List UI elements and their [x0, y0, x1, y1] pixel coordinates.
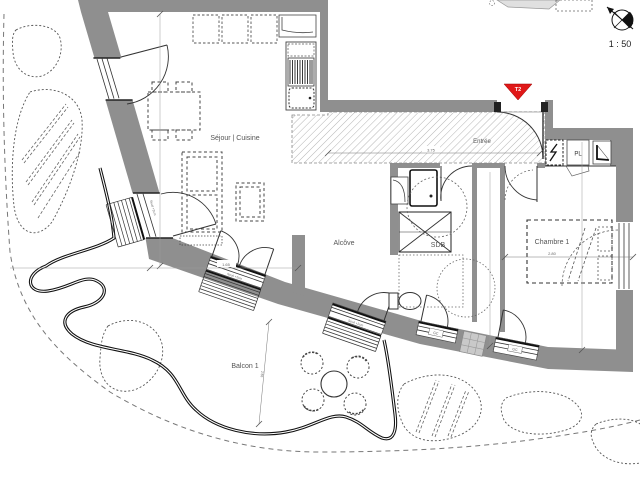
- door-jamb-right: [541, 102, 548, 112]
- turning-circle-lower: [437, 259, 495, 317]
- nightstand: [598, 227, 612, 251]
- planting-hatch-bottom: [416, 380, 469, 437]
- wall-right-lower: [616, 290, 633, 352]
- entree-floor-hatch: [292, 112, 545, 163]
- faucet-icon: [309, 97, 312, 100]
- scale-label: 1 : 50: [609, 39, 632, 49]
- vanity-unit: [391, 177, 408, 204]
- entree-label: Entrée: [473, 139, 491, 145]
- bed-outline: [527, 220, 612, 283]
- balcon-label: Balcon 1: [231, 363, 258, 370]
- chambre-furniture: [505, 166, 634, 290]
- dim-alcove: 1.65: [222, 262, 231, 267]
- placard-label: PL: [574, 152, 582, 158]
- wall-entree-south-3: [537, 163, 545, 168]
- upper-cabinet-1: [193, 15, 219, 43]
- dim-entree: 3.75: [427, 148, 436, 153]
- wall-stub-sejour-alcove: [292, 235, 305, 296]
- wall-entree-south-2: [472, 163, 505, 168]
- partition-chambre-west: [500, 168, 505, 332]
- dining-chair: [176, 130, 192, 140]
- chambre-door-arc: [505, 166, 537, 200]
- chambre-label: Chambre 1: [535, 239, 570, 246]
- wall-ne-band: [553, 128, 633, 140]
- wall-top: [78, 0, 322, 12]
- wall-left-mid: [106, 100, 160, 193]
- shrub-blob-bottom-left: [100, 320, 163, 391]
- upper-cabinet-2: [222, 15, 248, 43]
- corner-counter: [279, 15, 316, 37]
- dim-balcon: 2.55: [260, 371, 265, 378]
- patio-table: [321, 371, 347, 397]
- floor-plan-drawing: Entrée 3.75 T2: [0, 0, 640, 480]
- planting-bed-bottom-middle: [398, 375, 482, 441]
- armchair-seat: [240, 187, 260, 217]
- dim-chambre: 2.80: [548, 251, 557, 256]
- wall-right-upper: [616, 140, 633, 222]
- nightstand: [598, 256, 612, 280]
- wall-above-entree: [328, 100, 497, 112]
- bay-sdb-side: GC: [416, 295, 464, 343]
- sejour-label: Séjour | Cuisine: [210, 135, 259, 142]
- planting-bed-left: [12, 90, 82, 233]
- north-compass: [607, 7, 633, 30]
- pier-shaft-grid: [460, 331, 487, 356]
- balcony-dimension: 2.55: [256, 319, 272, 427]
- technical-row: PL: [545, 140, 616, 176]
- closet-door-flap: [566, 166, 589, 176]
- floor-plan-canvas: Entrée 3.75 T2: [0, 0, 640, 480]
- shrub-blob-top-left: [12, 25, 61, 76]
- adjacent-structure: [490, 0, 593, 11]
- kitchen-tall-unit: [286, 42, 316, 110]
- door-arc: [161, 192, 216, 224]
- chambre-window: [615, 222, 634, 290]
- partition-sdb-east: [472, 168, 477, 322]
- toilet-tank: [389, 293, 398, 309]
- unit-entry-marker: T2: [504, 84, 532, 100]
- door-leaf: [421, 295, 427, 321]
- door-leaf: [265, 249, 274, 275]
- sofa-cushion: [187, 195, 217, 229]
- shrub-blob-bottom-right: [501, 392, 581, 434]
- wall-kitchen-east: [320, 0, 328, 112]
- kitchen-fixtures: [193, 15, 316, 110]
- sofa-cushion: [187, 157, 217, 191]
- patio-chair: [301, 352, 323, 374]
- planting-hatch-left: [22, 104, 80, 218]
- shrub-blob-corner-right: [591, 419, 640, 464]
- window-swing-dashed: [562, 230, 618, 286]
- washing-machine: [410, 170, 437, 206]
- patio-chair: [302, 389, 324, 411]
- t2-marker-label: T2: [515, 87, 521, 93]
- door-leaf: [212, 231, 221, 257]
- wall-left-upper: [81, 12, 122, 58]
- chambre-door-arc-dashed: [505, 170, 533, 200]
- sofa-outline: [182, 152, 222, 232]
- dining-table: [148, 92, 200, 130]
- sdb-door-arc: [441, 166, 472, 201]
- dining-chair: [176, 82, 192, 92]
- door-jamb-left: [494, 102, 501, 112]
- sdb-label: SDB: [431, 242, 446, 249]
- upper-cabinet-3: [251, 15, 277, 43]
- door-leaf: [173, 224, 216, 236]
- patio-chair: [344, 393, 366, 415]
- alcove-label: Alcôve: [333, 240, 354, 247]
- balcony-furniture: [301, 352, 369, 415]
